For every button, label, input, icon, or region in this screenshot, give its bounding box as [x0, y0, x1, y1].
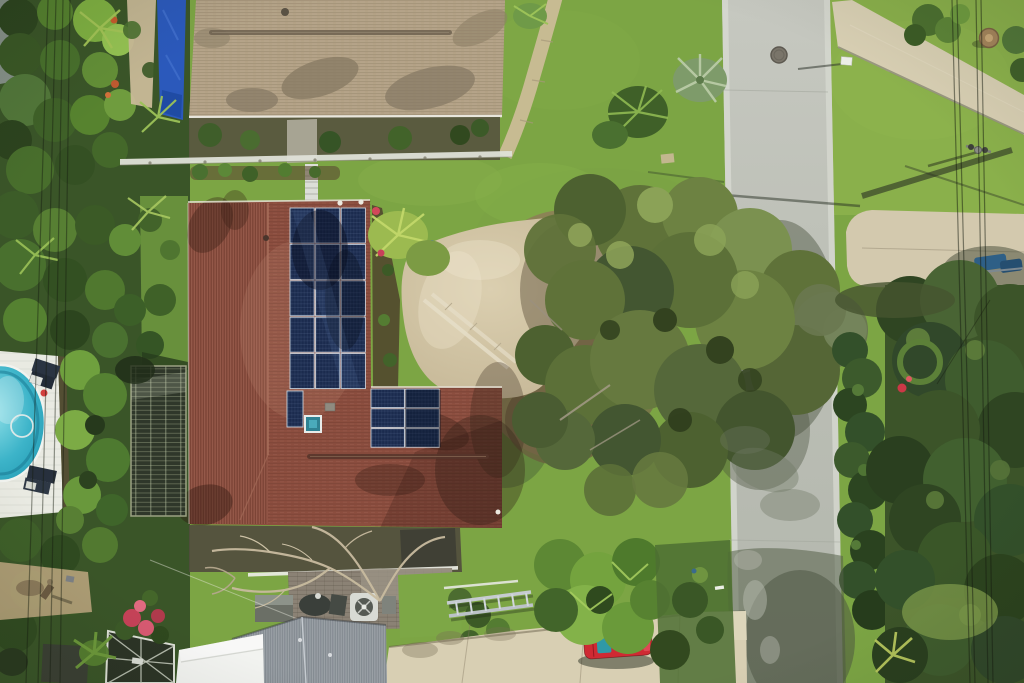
aerial-scene: [0, 0, 1024, 683]
vignette: [0, 0, 1024, 683]
aerial-photo-scene: [0, 0, 1024, 683]
